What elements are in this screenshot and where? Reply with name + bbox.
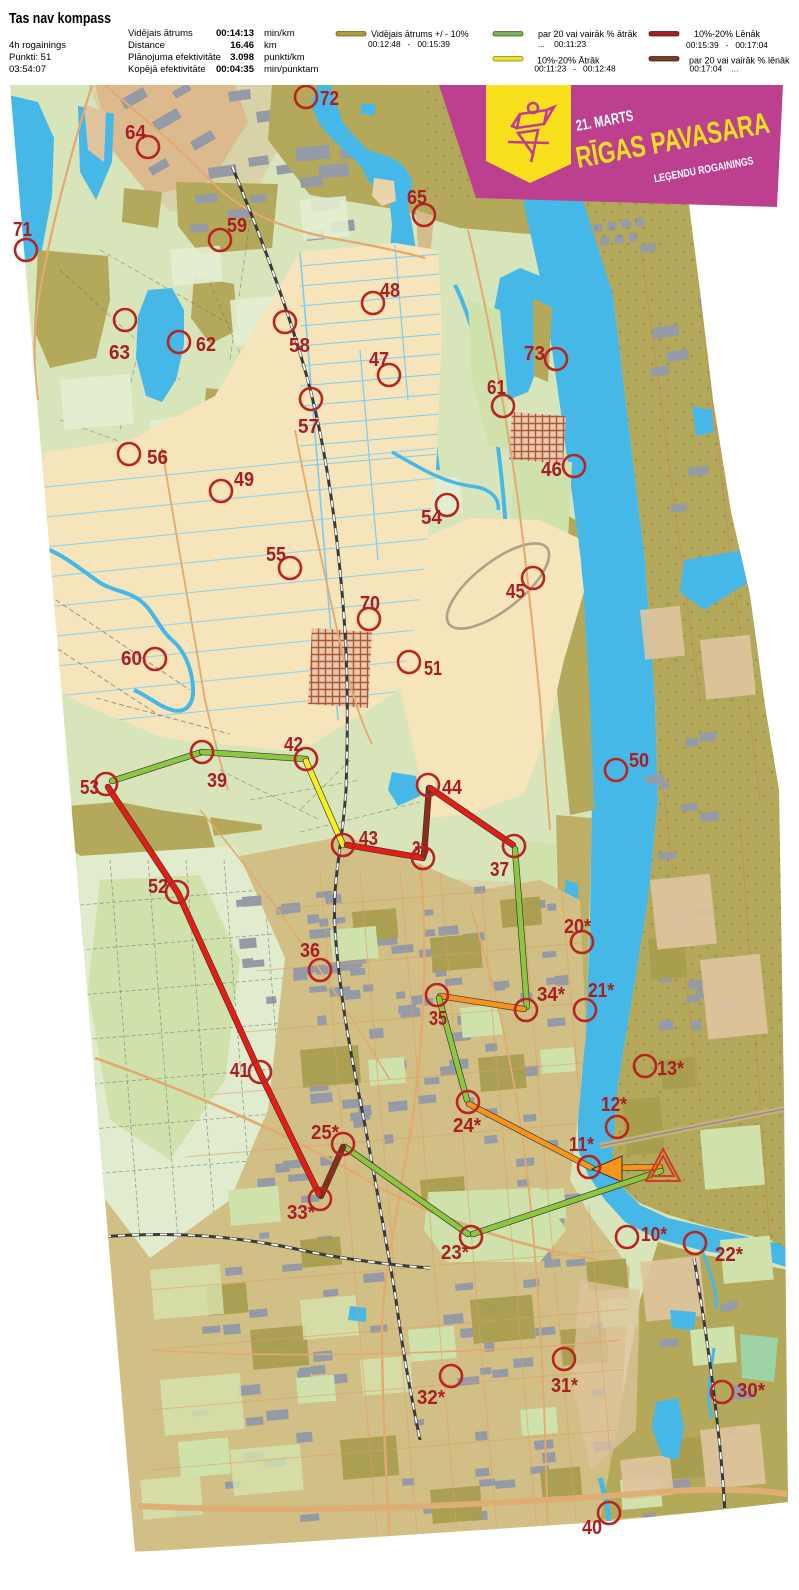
svg-text:24*: 24* [453, 1114, 481, 1137]
svg-text:4h rogainings: 4h rogainings [9, 40, 66, 51]
svg-text:44: 44 [442, 776, 463, 799]
svg-text:40: 40 [582, 1516, 602, 1539]
svg-text:73: 73 [524, 342, 545, 365]
svg-text:... 00:11:23: ... 00:11:23 [538, 39, 587, 49]
svg-text:71: 71 [13, 218, 32, 241]
svg-text:Punkti: 51: Punkti: 51 [9, 52, 51, 63]
svg-text:Kopējā efektivitāte: Kopējā efektivitāte [128, 64, 206, 75]
svg-text:35: 35 [429, 1007, 447, 1030]
svg-text:58: 58 [289, 334, 310, 357]
svg-text:00:15:39 - 00:17:04: 00:15:39 - 00:17:04 [686, 40, 768, 50]
svg-text:33: 33 [412, 837, 429, 860]
svg-text:49: 49 [234, 468, 254, 491]
svg-text:36: 36 [300, 939, 320, 962]
svg-text:54: 54 [421, 506, 443, 529]
svg-text:20*: 20* [564, 915, 591, 938]
svg-text:Plānojuma efektivitāte: Plānojuma efektivitāte [128, 52, 221, 63]
svg-text:min/km: min/km [264, 28, 295, 39]
svg-text:48: 48 [380, 279, 400, 302]
svg-text:25*: 25* [311, 1121, 339, 1144]
svg-text:par 20 vai vairāk % ātrāk: par 20 vai vairāk % ātrāk [538, 29, 638, 39]
svg-text:km: km [264, 40, 277, 51]
svg-text:34*: 34* [537, 983, 565, 1006]
svg-text:30*: 30* [737, 1379, 765, 1402]
svg-text:63: 63 [109, 341, 130, 364]
svg-text:Tas nav kompass: Tas nav kompass [9, 11, 111, 27]
svg-text:00:04:35: 00:04:35 [216, 64, 255, 75]
svg-text:00:11:23 - 00:12:48: 00:11:23 - 00:12:48 [534, 64, 616, 74]
svg-text:64: 64 [125, 121, 147, 144]
svg-text:43: 43 [359, 827, 378, 850]
svg-text:11*: 11* [569, 1133, 594, 1156]
svg-text:33*: 33* [287, 1201, 315, 1224]
svg-text:50: 50 [629, 749, 649, 772]
svg-text:41: 41 [230, 1059, 249, 1082]
svg-text:70: 70 [360, 592, 380, 615]
svg-text:52: 52 [148, 875, 168, 898]
svg-text:13*: 13* [657, 1057, 684, 1080]
svg-text:65: 65 [407, 186, 427, 209]
svg-text:42: 42 [284, 733, 303, 756]
svg-text:60: 60 [121, 647, 142, 670]
svg-text:punkti/km: punkti/km [264, 52, 305, 63]
svg-text:10%-20% Lēnāk: 10%-20% Lēnāk [694, 29, 761, 39]
svg-text:00:17:04 ...: 00:17:04 ... [690, 64, 739, 74]
svg-text:46: 46 [541, 458, 562, 481]
svg-text:61: 61 [487, 376, 506, 399]
svg-text:53: 53 [80, 776, 99, 799]
svg-text:Vidējais ātrums +/ - 10%: Vidējais ātrums +/ - 10% [371, 29, 469, 39]
svg-text:59: 59 [227, 214, 247, 237]
svg-text:51: 51 [424, 657, 442, 680]
svg-text:32*: 32* [417, 1386, 445, 1409]
svg-text:10*: 10* [641, 1223, 667, 1246]
svg-text:31*: 31* [551, 1374, 578, 1397]
svg-text:57: 57 [298, 415, 319, 438]
svg-text:39: 39 [207, 769, 227, 792]
svg-text:21*: 21* [588, 979, 614, 1002]
svg-text:72: 72 [320, 87, 339, 110]
svg-text:55: 55 [266, 543, 286, 566]
svg-text:56: 56 [147, 446, 168, 469]
svg-text:Vidējais ātrums: Vidējais ātrums [128, 28, 193, 39]
svg-text:62: 62 [196, 333, 216, 356]
svg-text:Distance: Distance [128, 40, 165, 51]
svg-text:12*: 12* [601, 1093, 627, 1116]
svg-text:00:12:48 - 00:15:39: 00:12:48 - 00:15:39 [368, 39, 450, 49]
svg-text:37: 37 [490, 858, 509, 881]
svg-text:min/punktam: min/punktam [264, 64, 318, 75]
svg-text:00:14:13: 00:14:13 [216, 28, 254, 39]
svg-text:23*: 23* [441, 1241, 469, 1264]
svg-text:03:54:07: 03:54:07 [9, 64, 46, 75]
svg-text:3.098: 3.098 [230, 52, 254, 63]
svg-text:16.46: 16.46 [230, 40, 254, 51]
svg-text:22*: 22* [715, 1243, 743, 1266]
svg-text:47: 47 [369, 348, 389, 371]
svg-text:45: 45 [506, 580, 525, 603]
